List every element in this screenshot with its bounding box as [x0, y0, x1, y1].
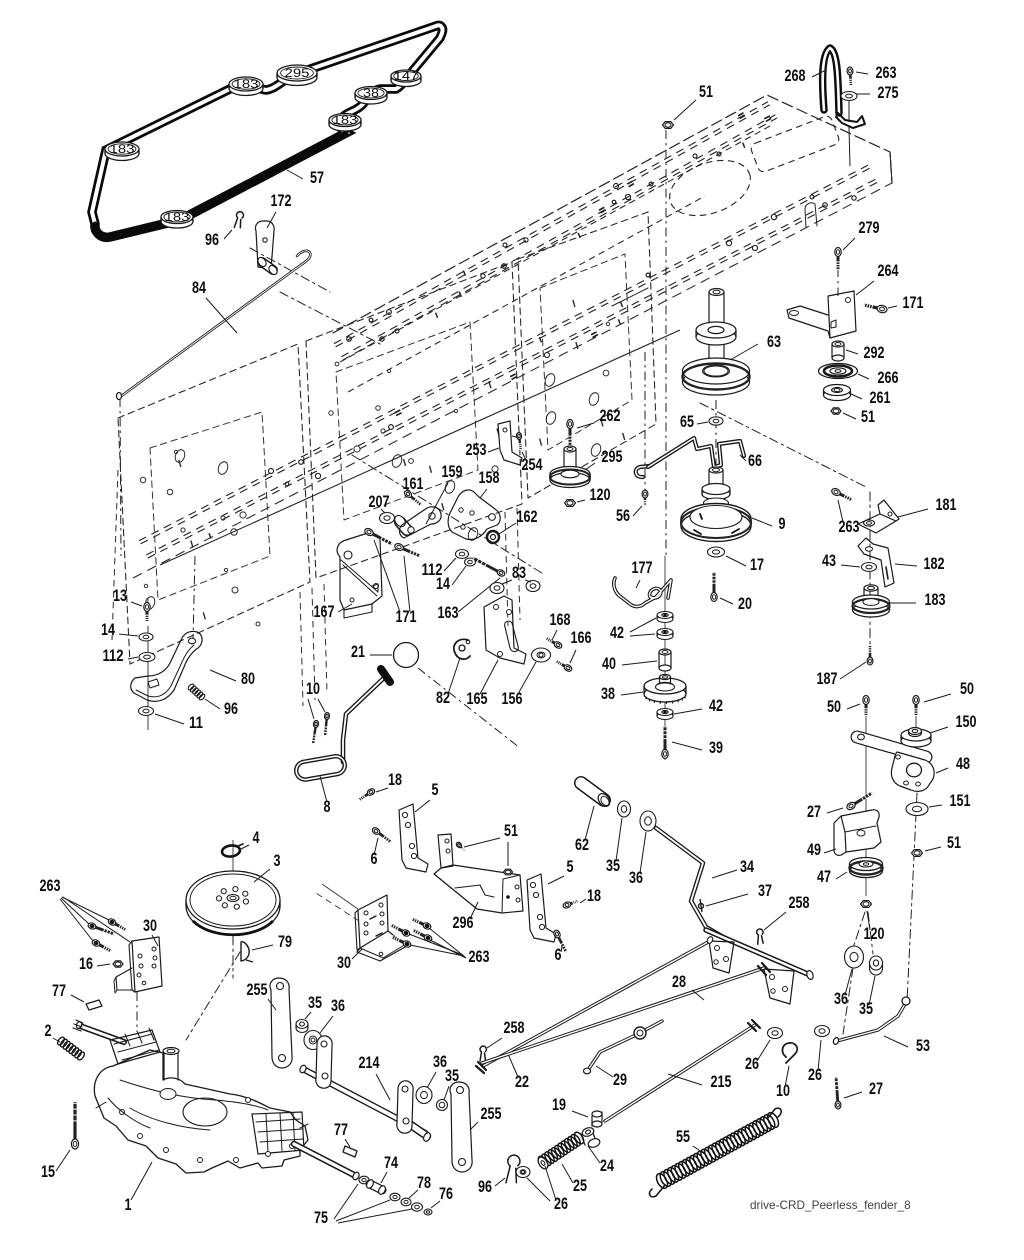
svg-text:171: 171	[903, 293, 924, 312]
svg-text:82: 82	[436, 688, 450, 707]
svg-text:18: 18	[388, 770, 402, 789]
svg-text:42: 42	[709, 696, 723, 715]
svg-text:47: 47	[817, 867, 831, 886]
svg-text:255: 255	[481, 1104, 502, 1123]
svg-text:51: 51	[861, 407, 875, 426]
svg-text:36: 36	[629, 868, 643, 887]
svg-text:10: 10	[306, 679, 320, 698]
svg-text:30: 30	[337, 953, 351, 972]
svg-text:8: 8	[324, 797, 331, 816]
svg-text:161: 161	[403, 474, 424, 493]
svg-text:28: 28	[672, 972, 686, 991]
svg-text:263: 263	[876, 63, 897, 82]
svg-text:177: 177	[632, 558, 653, 577]
svg-text:40: 40	[602, 654, 616, 673]
svg-text:14: 14	[101, 620, 115, 639]
svg-text:96: 96	[205, 230, 219, 249]
svg-text:83: 83	[512, 563, 526, 582]
svg-text:158: 158	[479, 468, 500, 487]
svg-text:18: 18	[587, 886, 601, 905]
svg-text:51: 51	[947, 833, 961, 852]
svg-text:165: 165	[467, 689, 488, 708]
svg-text:5: 5	[567, 857, 574, 876]
svg-text:80: 80	[241, 669, 255, 688]
svg-text:17: 17	[750, 555, 764, 574]
svg-text:50: 50	[827, 697, 841, 716]
svg-text:166: 166	[571, 628, 592, 647]
svg-text:172: 172	[271, 191, 292, 210]
svg-text:1: 1	[125, 1195, 132, 1214]
svg-text:15: 15	[41, 1162, 55, 1181]
svg-text:43: 43	[822, 551, 836, 570]
svg-text:13: 13	[113, 586, 127, 605]
svg-text:63: 63	[767, 332, 781, 351]
svg-text:14: 14	[436, 574, 450, 593]
svg-text:263: 263	[839, 517, 860, 536]
svg-text:96: 96	[478, 1177, 492, 1196]
svg-text:56: 56	[616, 506, 630, 525]
svg-text:35: 35	[308, 993, 322, 1012]
svg-text:29: 29	[613, 1070, 627, 1089]
svg-text:drive-CRD_Peerless_fender_8: drive-CRD_Peerless_fender_8	[750, 1198, 911, 1212]
svg-text:27: 27	[807, 802, 821, 821]
svg-text:38: 38	[363, 86, 379, 100]
svg-text:35: 35	[606, 856, 620, 875]
svg-text:79: 79	[278, 932, 292, 951]
svg-text:37: 37	[758, 881, 772, 900]
svg-text:292: 292	[864, 343, 885, 362]
svg-text:34: 34	[740, 857, 754, 876]
svg-text:268: 268	[785, 66, 806, 85]
svg-text:75: 75	[314, 1208, 328, 1227]
svg-text:207: 207	[369, 492, 390, 511]
svg-text:183: 183	[234, 77, 259, 91]
svg-text:4: 4	[253, 828, 260, 847]
svg-text:5: 5	[432, 780, 439, 799]
svg-text:57: 57	[310, 168, 324, 187]
svg-text:120: 120	[590, 485, 611, 504]
svg-text:295: 295	[602, 447, 623, 466]
svg-text:181: 181	[936, 495, 957, 514]
svg-text:182: 182	[924, 554, 945, 573]
svg-text:84: 84	[192, 278, 206, 297]
svg-text:171: 171	[396, 607, 417, 626]
svg-text:275: 275	[878, 83, 899, 102]
svg-text:150: 150	[956, 712, 977, 731]
svg-text:6: 6	[371, 849, 378, 868]
svg-text:96: 96	[224, 699, 238, 718]
svg-text:10: 10	[776, 1081, 790, 1100]
svg-text:151: 151	[950, 791, 971, 810]
svg-text:183: 183	[110, 142, 135, 156]
svg-text:187: 187	[817, 669, 838, 688]
svg-text:183: 183	[333, 113, 358, 127]
svg-text:49: 49	[807, 840, 821, 859]
svg-text:76: 76	[439, 1184, 453, 1203]
svg-text:264: 264	[878, 261, 899, 280]
svg-text:163: 163	[438, 603, 459, 622]
svg-text:295: 295	[285, 66, 310, 80]
svg-text:74: 74	[384, 1153, 398, 1172]
svg-text:20: 20	[738, 594, 752, 613]
svg-text:19: 19	[552, 1095, 566, 1114]
svg-text:66: 66	[748, 451, 762, 470]
svg-text:36: 36	[331, 996, 345, 1015]
svg-text:77: 77	[52, 981, 66, 1000]
svg-text:258: 258	[789, 893, 810, 912]
svg-text:253: 253	[466, 440, 487, 459]
svg-text:112: 112	[103, 646, 124, 665]
svg-text:42: 42	[610, 623, 624, 642]
svg-text:168: 168	[550, 610, 571, 629]
svg-text:11: 11	[189, 713, 203, 732]
svg-text:6: 6	[555, 945, 562, 964]
svg-text:65: 65	[680, 412, 694, 431]
svg-text:30: 30	[143, 916, 157, 935]
svg-text:77: 77	[334, 1120, 348, 1139]
svg-text:147: 147	[394, 69, 419, 83]
svg-text:3: 3	[274, 851, 281, 870]
svg-text:50: 50	[960, 679, 974, 698]
svg-text:9: 9	[779, 514, 786, 533]
svg-text:183: 183	[165, 210, 190, 224]
svg-text:279: 279	[859, 218, 880, 237]
svg-text:51: 51	[504, 821, 518, 840]
svg-text:263: 263	[469, 947, 490, 966]
svg-text:53: 53	[916, 1036, 930, 1055]
svg-text:21: 21	[351, 642, 365, 661]
svg-text:39: 39	[709, 738, 723, 757]
svg-text:258: 258	[504, 1018, 525, 1037]
svg-text:263: 263	[40, 876, 61, 895]
svg-text:162: 162	[517, 507, 538, 526]
svg-text:159: 159	[442, 462, 463, 481]
svg-text:35: 35	[859, 999, 873, 1018]
svg-text:214: 214	[359, 1053, 380, 1072]
svg-text:215: 215	[711, 1072, 732, 1091]
svg-text:16: 16	[79, 954, 93, 973]
svg-text:78: 78	[417, 1173, 431, 1192]
svg-text:296: 296	[453, 913, 474, 932]
svg-text:24: 24	[600, 1156, 614, 1175]
svg-text:120: 120	[864, 924, 885, 943]
svg-text:262: 262	[600, 406, 621, 425]
svg-text:26: 26	[745, 1054, 759, 1073]
svg-text:25: 25	[573, 1176, 587, 1195]
svg-text:261: 261	[870, 388, 891, 407]
svg-text:26: 26	[808, 1065, 822, 1084]
svg-text:27: 27	[869, 1079, 883, 1098]
svg-text:48: 48	[956, 754, 970, 773]
svg-text:38: 38	[601, 684, 615, 703]
svg-text:55: 55	[676, 1127, 690, 1146]
svg-text:266: 266	[878, 368, 899, 387]
svg-text:183: 183	[925, 590, 946, 609]
svg-text:255: 255	[247, 980, 268, 999]
svg-text:26: 26	[554, 1194, 568, 1213]
svg-text:51: 51	[699, 82, 713, 101]
svg-text:62: 62	[575, 835, 589, 854]
svg-text:167: 167	[314, 602, 335, 621]
svg-text:2: 2	[45, 1021, 52, 1040]
